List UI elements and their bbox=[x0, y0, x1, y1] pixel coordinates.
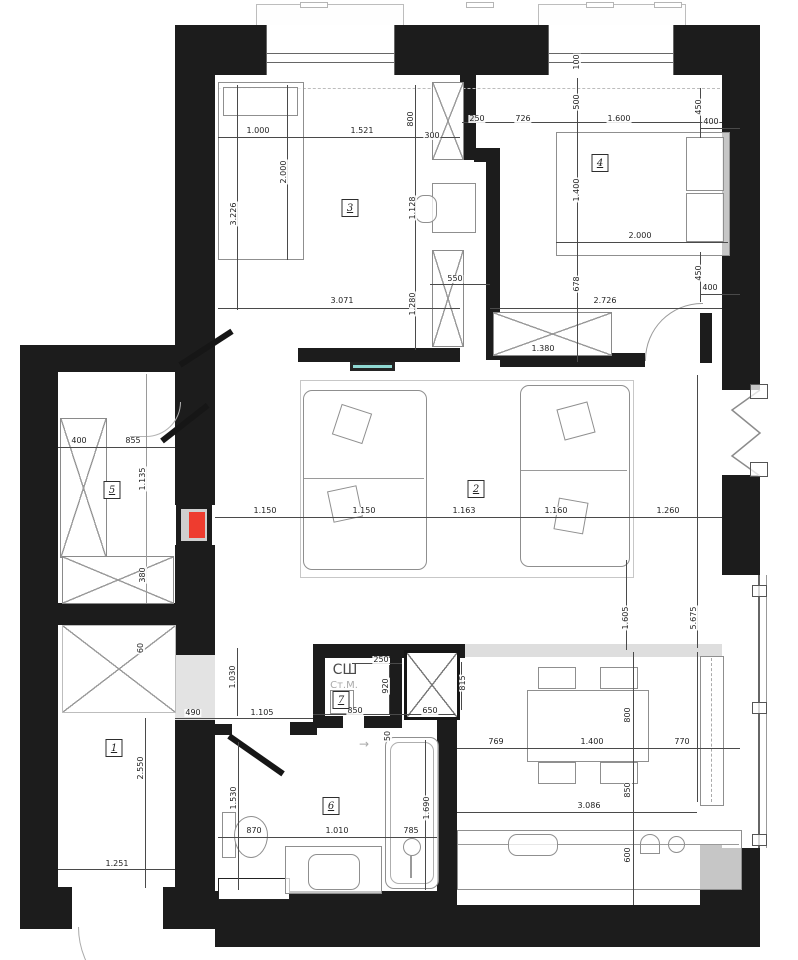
dim-label: 400 bbox=[701, 284, 718, 292]
dim-label: 2.000 bbox=[628, 232, 653, 240]
bathtub-faucet bbox=[410, 856, 412, 878]
window-top-left bbox=[266, 25, 395, 75]
wall-left-mid bbox=[175, 545, 215, 655]
balcony-door-jamb-top bbox=[750, 384, 768, 399]
dim-line bbox=[556, 242, 728, 243]
dim-label: 815 bbox=[459, 674, 467, 691]
dim-label: 5.675 bbox=[690, 606, 698, 631]
wall-left-lower bbox=[175, 720, 215, 910]
dim-line-v bbox=[633, 652, 634, 905]
desk-room3 bbox=[432, 183, 476, 233]
dim-label: 250 bbox=[372, 656, 389, 664]
dim-label: 800 bbox=[624, 706, 632, 723]
dim-line bbox=[700, 128, 740, 129]
balcony-rail-tick bbox=[586, 2, 614, 8]
dim-label: 1.521 bbox=[350, 127, 375, 135]
dining-chair bbox=[538, 762, 576, 784]
stove-burner bbox=[668, 836, 685, 853]
dim-line-v bbox=[237, 648, 238, 716]
wardrobe-column-bottom bbox=[432, 250, 464, 347]
dim-label: 1.150 bbox=[253, 507, 278, 515]
desk-chair-room3 bbox=[415, 195, 437, 223]
dim-label: 920 bbox=[382, 677, 390, 694]
dim-line bbox=[58, 869, 175, 870]
dim-label: 678 bbox=[573, 275, 581, 292]
dim-label: 800 bbox=[407, 110, 415, 127]
dim-line bbox=[218, 837, 437, 838]
dim-label: 870 bbox=[245, 827, 262, 835]
sofa-left-cushion-line bbox=[304, 478, 424, 479]
stove-burner bbox=[640, 834, 660, 854]
kitchen-sink bbox=[508, 834, 558, 856]
wall-entrance-left bbox=[20, 887, 72, 929]
dim-label: 1.010 bbox=[325, 827, 350, 835]
dim-line bbox=[58, 447, 175, 448]
dim-label: 450 bbox=[695, 98, 703, 115]
wardrobe-column-top bbox=[432, 82, 464, 160]
dim-label: 3.086 bbox=[577, 802, 602, 810]
dim-line bbox=[457, 812, 697, 813]
dim-label: 1.128 bbox=[409, 196, 417, 221]
dim-label: 2.726 bbox=[593, 297, 618, 305]
floor-plan: → 1.000 1.521 800 300 250 726 100 500 bbox=[0, 0, 798, 960]
dim-label: 1.400 bbox=[573, 178, 581, 203]
dim-label: 726 bbox=[514, 115, 531, 123]
dim-line bbox=[215, 517, 722, 518]
wall-ext-left bbox=[20, 372, 58, 887]
bed-room4-pillow-bottom bbox=[686, 193, 724, 242]
dim-label: 770 bbox=[673, 738, 690, 746]
wall-bath-top-b bbox=[290, 722, 317, 735]
dim-line bbox=[462, 122, 722, 123]
dim-line bbox=[175, 718, 313, 719]
dim-label: 1.605 bbox=[622, 606, 630, 631]
room-label-2: 2 bbox=[468, 480, 485, 498]
door-arc-room4 bbox=[645, 303, 703, 361]
window-right-lower bbox=[722, 575, 778, 848]
dim-line-v bbox=[697, 652, 698, 802]
dim-label: 380 bbox=[139, 566, 147, 583]
angled-door-bathroom bbox=[227, 734, 285, 777]
wall-closet-bottom-b bbox=[364, 716, 402, 728]
balcony-rail-tick bbox=[466, 2, 494, 8]
wall-entrance-right bbox=[163, 887, 215, 929]
dim-line bbox=[430, 284, 490, 285]
dining-chair bbox=[538, 667, 576, 689]
wall-room5-divider bbox=[20, 603, 175, 625]
dim-label: 1.400 bbox=[580, 738, 605, 746]
dim-label: 2.550 bbox=[137, 756, 145, 781]
dim-label: 1.000 bbox=[246, 127, 271, 135]
wall-living-top-a bbox=[298, 348, 460, 362]
dim-label: 450 bbox=[695, 264, 703, 281]
dim-label: 850 bbox=[624, 781, 632, 798]
storage-room5-lower bbox=[62, 556, 174, 604]
wall-closet-bottom-a bbox=[313, 716, 343, 728]
floor-strip-kitchen bbox=[457, 644, 722, 657]
dim-label: 1.150 bbox=[352, 507, 377, 515]
room-label-4: 4 bbox=[592, 154, 609, 172]
closet-label-mid: Ст.М. bbox=[330, 681, 358, 691]
dim-label: 3.226 bbox=[230, 202, 238, 227]
window-right-notch bbox=[752, 834, 767, 846]
dim-label: 1.105 bbox=[250, 709, 275, 717]
dim-line-v bbox=[145, 718, 146, 888]
dim-line bbox=[490, 308, 722, 309]
entry-arrow-icon: → bbox=[359, 738, 369, 750]
kitchen-cabinet-dash bbox=[711, 658, 712, 802]
bed-room4-pillow-top bbox=[686, 137, 724, 191]
window-top-right bbox=[548, 25, 674, 75]
dim-line bbox=[218, 308, 460, 309]
window-right-notch bbox=[752, 585, 767, 597]
wall-niche bbox=[218, 878, 290, 900]
dim-label: 1.135 bbox=[139, 467, 147, 492]
door-arc-entrance bbox=[78, 927, 165, 960]
dim-label: 855 bbox=[124, 437, 141, 445]
dim-label: 1.260 bbox=[656, 507, 681, 515]
dim-label: 250 bbox=[468, 115, 485, 123]
electric-panel-red bbox=[189, 512, 205, 538]
balcony-rail-tick bbox=[300, 2, 328, 8]
dim-label: 600 bbox=[624, 846, 632, 863]
balcony-rail-tick bbox=[654, 2, 682, 8]
window-right-notch bbox=[752, 702, 767, 714]
vanity-sink bbox=[308, 854, 360, 890]
room-label-6: 6 bbox=[323, 797, 340, 815]
kitchen-counter bbox=[457, 830, 742, 890]
dim-label: 500 bbox=[573, 93, 581, 110]
dim-label: 60 bbox=[137, 642, 145, 654]
dim-label: 3.071 bbox=[330, 297, 355, 305]
dim-line bbox=[700, 294, 740, 295]
wall-bath-kitchen-divider bbox=[437, 720, 457, 895]
dim-label: 650 bbox=[421, 707, 438, 715]
dim-label: 400 bbox=[70, 437, 87, 445]
wall-left-upper bbox=[175, 75, 215, 505]
dim-label: 50 bbox=[384, 730, 392, 742]
closet-label-top: СШ bbox=[333, 663, 358, 677]
dim-label: 300 bbox=[423, 132, 440, 140]
dim-line-v bbox=[577, 78, 578, 362]
dim-label: 400 bbox=[702, 118, 719, 126]
room-label-5: 5 bbox=[104, 481, 121, 499]
dim-label: 100 bbox=[573, 53, 581, 70]
dim-label: 490 bbox=[184, 709, 201, 717]
sofa-right-cushion-line bbox=[521, 470, 627, 471]
wall-bottom bbox=[215, 905, 760, 947]
dim-label: 769 bbox=[487, 738, 504, 746]
dim-label: 1.530 bbox=[230, 786, 238, 811]
dim-label: 1.251 bbox=[105, 860, 130, 868]
room-label-1: 1 bbox=[106, 739, 123, 757]
storage-hall bbox=[62, 625, 176, 713]
wall-right-pier bbox=[722, 475, 760, 575]
wall-ext-top bbox=[20, 345, 175, 372]
tv-unit-accent bbox=[353, 365, 392, 368]
room-label-3: 3 bbox=[342, 199, 359, 217]
dim-label: 1.280 bbox=[409, 292, 417, 317]
dining-table bbox=[527, 690, 649, 762]
dim-label: 1.163 bbox=[452, 507, 477, 515]
dim-label: 550 bbox=[446, 275, 463, 283]
dim-label: 2.000 bbox=[280, 160, 288, 185]
dim-label: 1.380 bbox=[531, 345, 556, 353]
dim-line-v bbox=[238, 742, 239, 890]
kitchen-counter-edge bbox=[458, 844, 739, 845]
dim-label: 1.160 bbox=[544, 507, 569, 515]
balcony-door-jamb-bottom bbox=[750, 462, 768, 477]
dim-label: 1.030 bbox=[229, 665, 237, 690]
room-label-7: 7 bbox=[333, 691, 350, 709]
bathtub-drain bbox=[403, 838, 421, 856]
dim-label: 785 bbox=[402, 827, 419, 835]
dim-label: 1.600 bbox=[607, 115, 632, 123]
kitchen-tall-cabinet bbox=[700, 656, 724, 806]
dim-label: 1.690 bbox=[423, 796, 431, 821]
dim-line-v bbox=[237, 85, 238, 310]
sofa-right-pillow2 bbox=[553, 498, 588, 535]
